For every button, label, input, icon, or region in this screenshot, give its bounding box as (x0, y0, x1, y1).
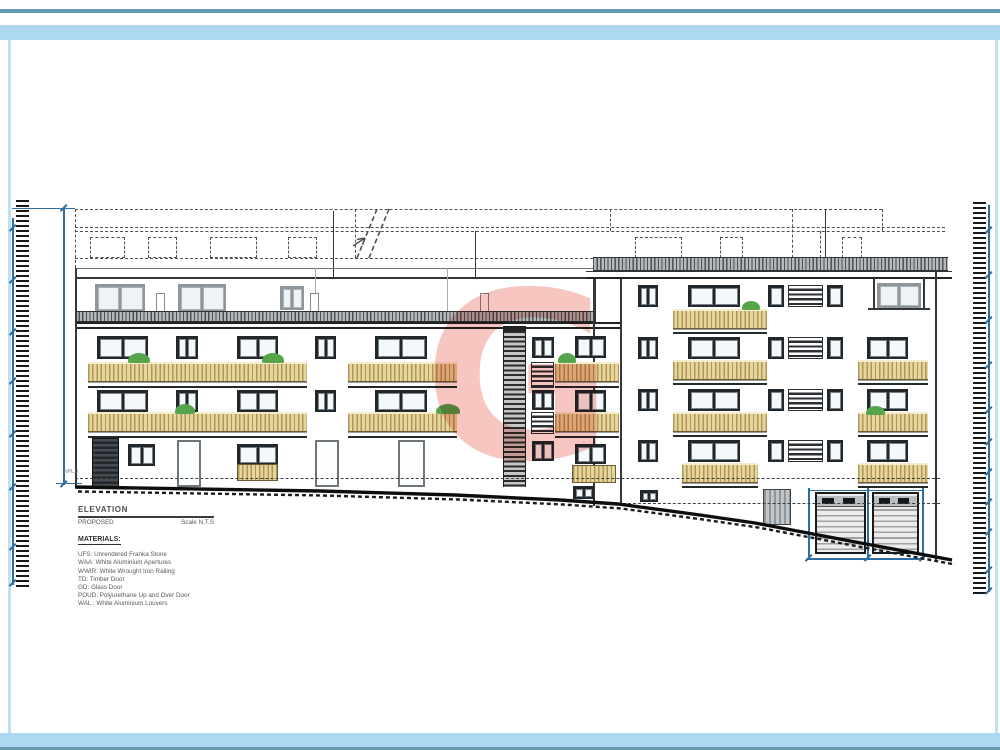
materials-item: WAA: White Aluminium Apertures (78, 559, 171, 566)
drawing-sheet: G ELEVATION PROPOSED Scale N.T.S MATERIA… (0, 0, 1000, 750)
roof-diagonal-dashed (357, 209, 377, 258)
materials-heading: MATERIALS: (78, 536, 121, 545)
title-underline (78, 516, 214, 518)
materials-item: GD: Glass Door (78, 584, 122, 591)
drawing-subtitle: PROPOSED (78, 519, 114, 526)
materials-item: UFS: Unrendered Franka Stone (78, 551, 167, 558)
materials-item: WAL : White Aluminium Louvers (78, 600, 167, 607)
watermark-logo: G (423, 292, 595, 467)
materials-item: POUD: Polyurethane Up and Over Door (78, 592, 190, 599)
drawing-title: ELEVATION (78, 505, 128, 514)
materials-item: TD: Timber Door (78, 576, 125, 583)
materials-item: WWIR: White Wrought Iron Railing (78, 568, 175, 575)
roof-diagonal-dashed (369, 209, 389, 258)
level-marker: NPL.0 (64, 469, 78, 475)
drawing-scale: Scale N.T.S (160, 519, 214, 526)
